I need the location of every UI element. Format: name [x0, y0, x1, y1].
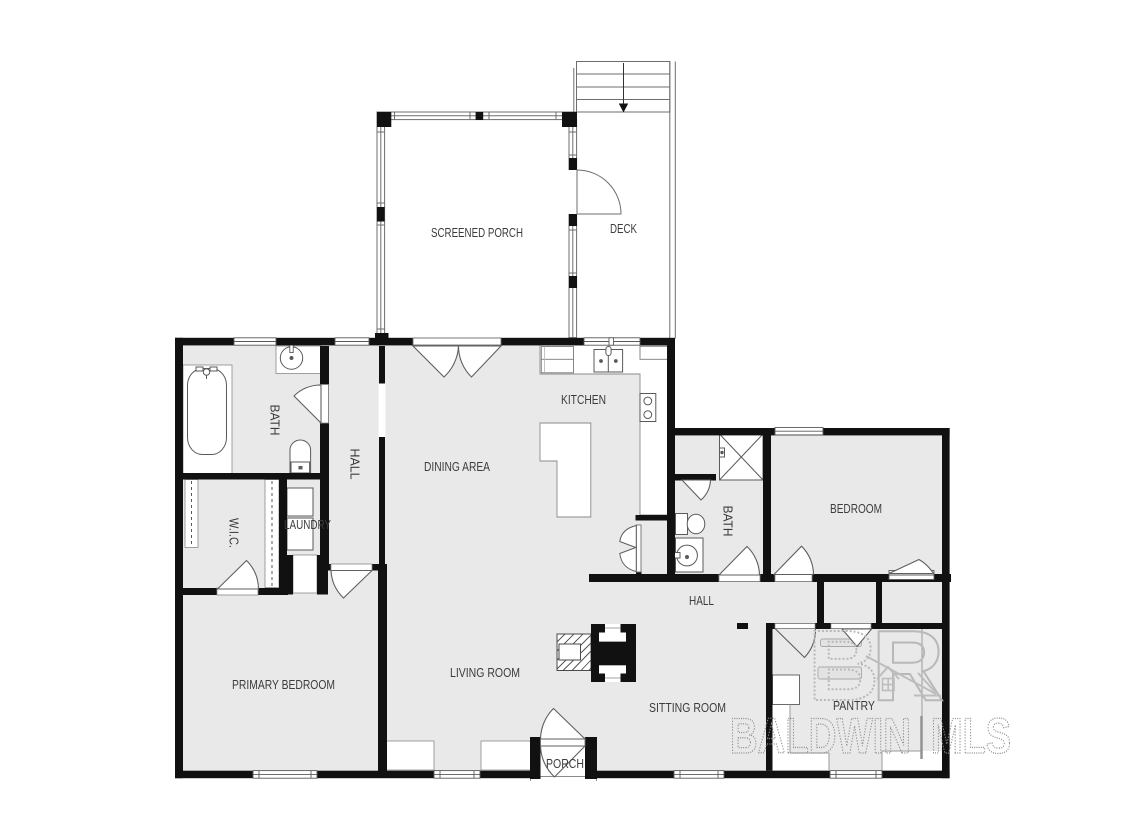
svg-text:BEDROOM: BEDROOM: [830, 501, 882, 516]
svg-text:PRIMARY BEDROOM: PRIMARY BEDROOM: [232, 677, 335, 692]
svg-text:LAUNDRY: LAUNDRY: [284, 517, 331, 532]
svg-text:BATH: BATH: [267, 405, 282, 436]
svg-text:PORCH: PORCH: [546, 756, 584, 771]
svg-text:DECK: DECK: [610, 221, 637, 236]
svg-text:DINING AREA: DINING AREA: [424, 459, 490, 474]
svg-text:B: B: [808, 610, 879, 722]
svg-text:HALL: HALL: [689, 593, 714, 608]
svg-text:KITCHEN: KITCHEN: [561, 392, 606, 407]
svg-text:BALDWIN: BALDWIN: [730, 708, 911, 764]
svg-text:W.I.C.: W.I.C.: [226, 518, 241, 548]
svg-text:HALL: HALL: [347, 449, 362, 480]
svg-text:SCREENED PORCH: SCREENED PORCH: [431, 225, 523, 240]
svg-text:LIVING ROOM: LIVING ROOM: [450, 665, 520, 680]
svg-text:SITTING ROOM: SITTING ROOM: [649, 700, 726, 715]
svg-text:MLS: MLS: [931, 708, 1011, 764]
svg-text:BATH: BATH: [720, 506, 735, 537]
